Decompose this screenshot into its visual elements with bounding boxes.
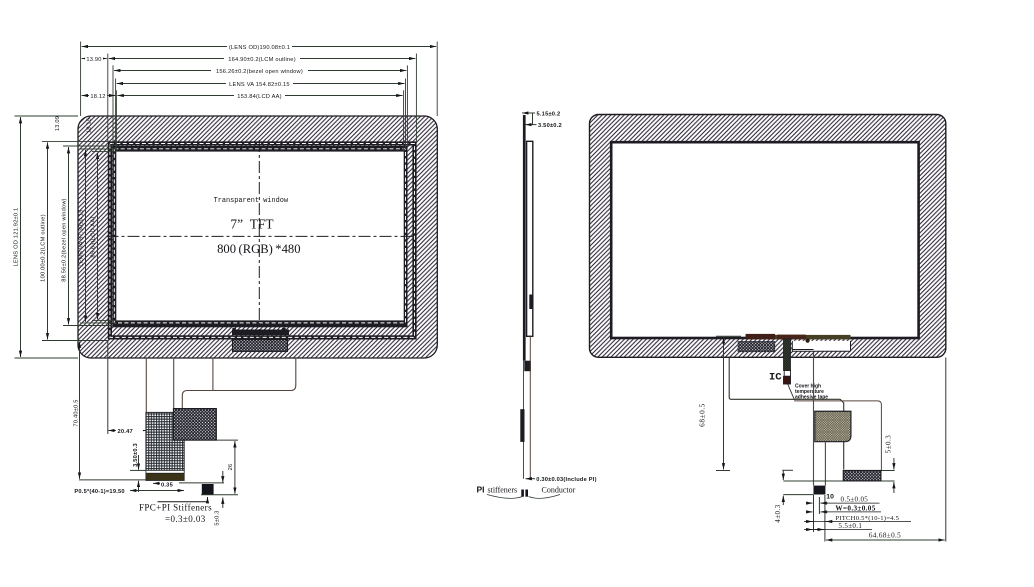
svg-text:18.15: 18.15 bbox=[87, 118, 93, 133]
svg-text:P0.5*(40-1)=19.50: P0.5*(40-1)=19.50 bbox=[74, 489, 124, 495]
svg-text:20.47: 20.47 bbox=[118, 429, 133, 435]
svg-text:7” TFT: 7” TFT bbox=[230, 217, 273, 232]
svg-text:0.30±0.03(Include PI): 0.30±0.03(Include PI) bbox=[536, 477, 597, 483]
svg-text:LENS OD 121.92±0.1: LENS OD 121.92±0.1 bbox=[14, 208, 20, 267]
svg-text:13.90: 13.90 bbox=[86, 57, 101, 63]
svg-text:156.26±0.2(bezel open window): 156.26±0.2(bezel open window) bbox=[216, 69, 303, 75]
svg-text:LENS VA 154.82±0.15: LENS VA 154.82±0.15 bbox=[229, 82, 290, 88]
svg-text:3.50±0.2: 3.50±0.2 bbox=[538, 123, 562, 129]
svg-text:64.68±0.5: 64.68±0.5 bbox=[869, 532, 901, 540]
svg-text:68±0.5: 68±0.5 bbox=[699, 403, 707, 427]
svg-text:3.50±0.3: 3.50±0.3 bbox=[133, 443, 139, 467]
svg-text:(LENS OD)190.08±0.1: (LENS OD)190.08±0.1 bbox=[229, 45, 290, 51]
svg-text:Conductor: Conductor bbox=[542, 486, 576, 495]
svg-text:5±0.3: 5±0.3 bbox=[885, 435, 893, 454]
svg-text:=0.3±0.03: =0.3±0.03 bbox=[165, 514, 206, 524]
svg-text:164.90±0.2(LCM outline): 164.90±0.2(LCM outline) bbox=[228, 57, 296, 63]
svg-text:26: 26 bbox=[228, 464, 234, 471]
svg-text:stiffeners: stiffeners bbox=[488, 486, 518, 495]
svg-text:13.09: 13.09 bbox=[55, 116, 61, 131]
svg-text:70.40±0.5: 70.40±0.5 bbox=[74, 399, 80, 426]
svg-text:5.5±0.1: 5.5±0.1 bbox=[838, 522, 862, 530]
svg-text:88.56±0.2(bezel open window): 88.56±0.2(bezel open window) bbox=[62, 198, 68, 282]
svg-text:10: 10 bbox=[826, 493, 834, 500]
svg-text:153.84(LCD AA): 153.84(LCD AA) bbox=[237, 94, 282, 100]
svg-text:IC: IC bbox=[769, 372, 782, 384]
svg-text:FPC+PI Stiffeners: FPC+PI Stiffeners bbox=[139, 503, 212, 513]
svg-text:18.12: 18.12 bbox=[90, 94, 105, 100]
svg-text:800 (RGB) *480: 800 (RGB) *480 bbox=[217, 242, 300, 256]
svg-text:5±0.3: 5±0.3 bbox=[215, 510, 221, 525]
svg-text:LENS VA 87.30±0.15: LENS VA 87.30±0.15 bbox=[79, 209, 85, 266]
svg-text:PITCH0.5*(10-1)=4.5: PITCH0.5*(10-1)=4.5 bbox=[835, 515, 899, 522]
svg-text:100.00±0.2(LCM outline): 100.00±0.2(LCM outline) bbox=[41, 214, 47, 282]
svg-text:0.35: 0.35 bbox=[161, 482, 173, 488]
svg-text:adhesive tape: adhesive tape bbox=[795, 394, 828, 400]
svg-text:Transparent window: Transparent window bbox=[214, 197, 289, 205]
svg-text:PI: PI bbox=[477, 485, 485, 495]
svg-text:0.5±0.05: 0.5±0.05 bbox=[841, 496, 869, 504]
svg-text:85.63(LCD AA): 85.63(LCD AA) bbox=[91, 216, 97, 257]
svg-text:5.15±0.2: 5.15±0.2 bbox=[537, 112, 561, 118]
svg-text:4±0.3: 4±0.3 bbox=[774, 504, 782, 523]
svg-text:W=0.3±0.05: W=0.3±0.05 bbox=[835, 504, 875, 512]
